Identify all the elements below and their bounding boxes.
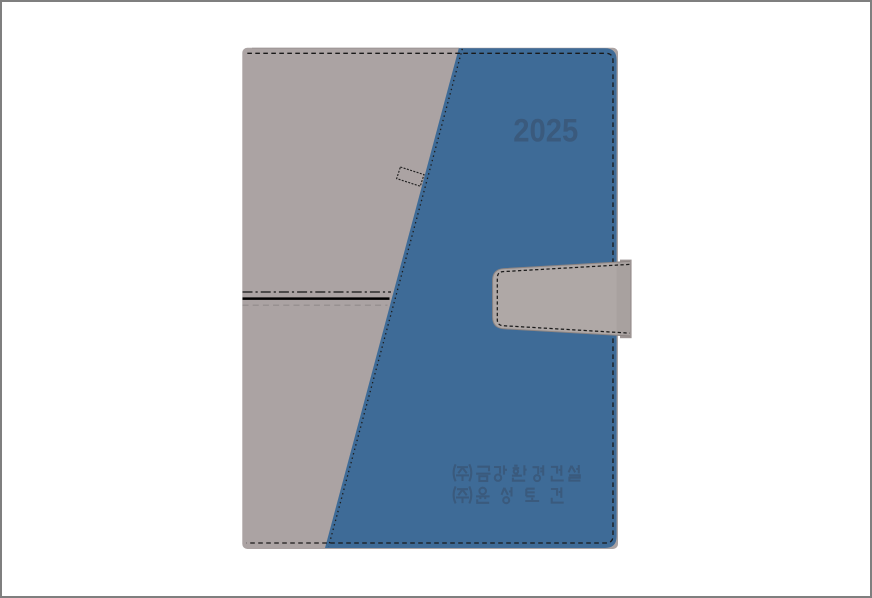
svg-text:2025: 2025	[513, 113, 578, 149]
